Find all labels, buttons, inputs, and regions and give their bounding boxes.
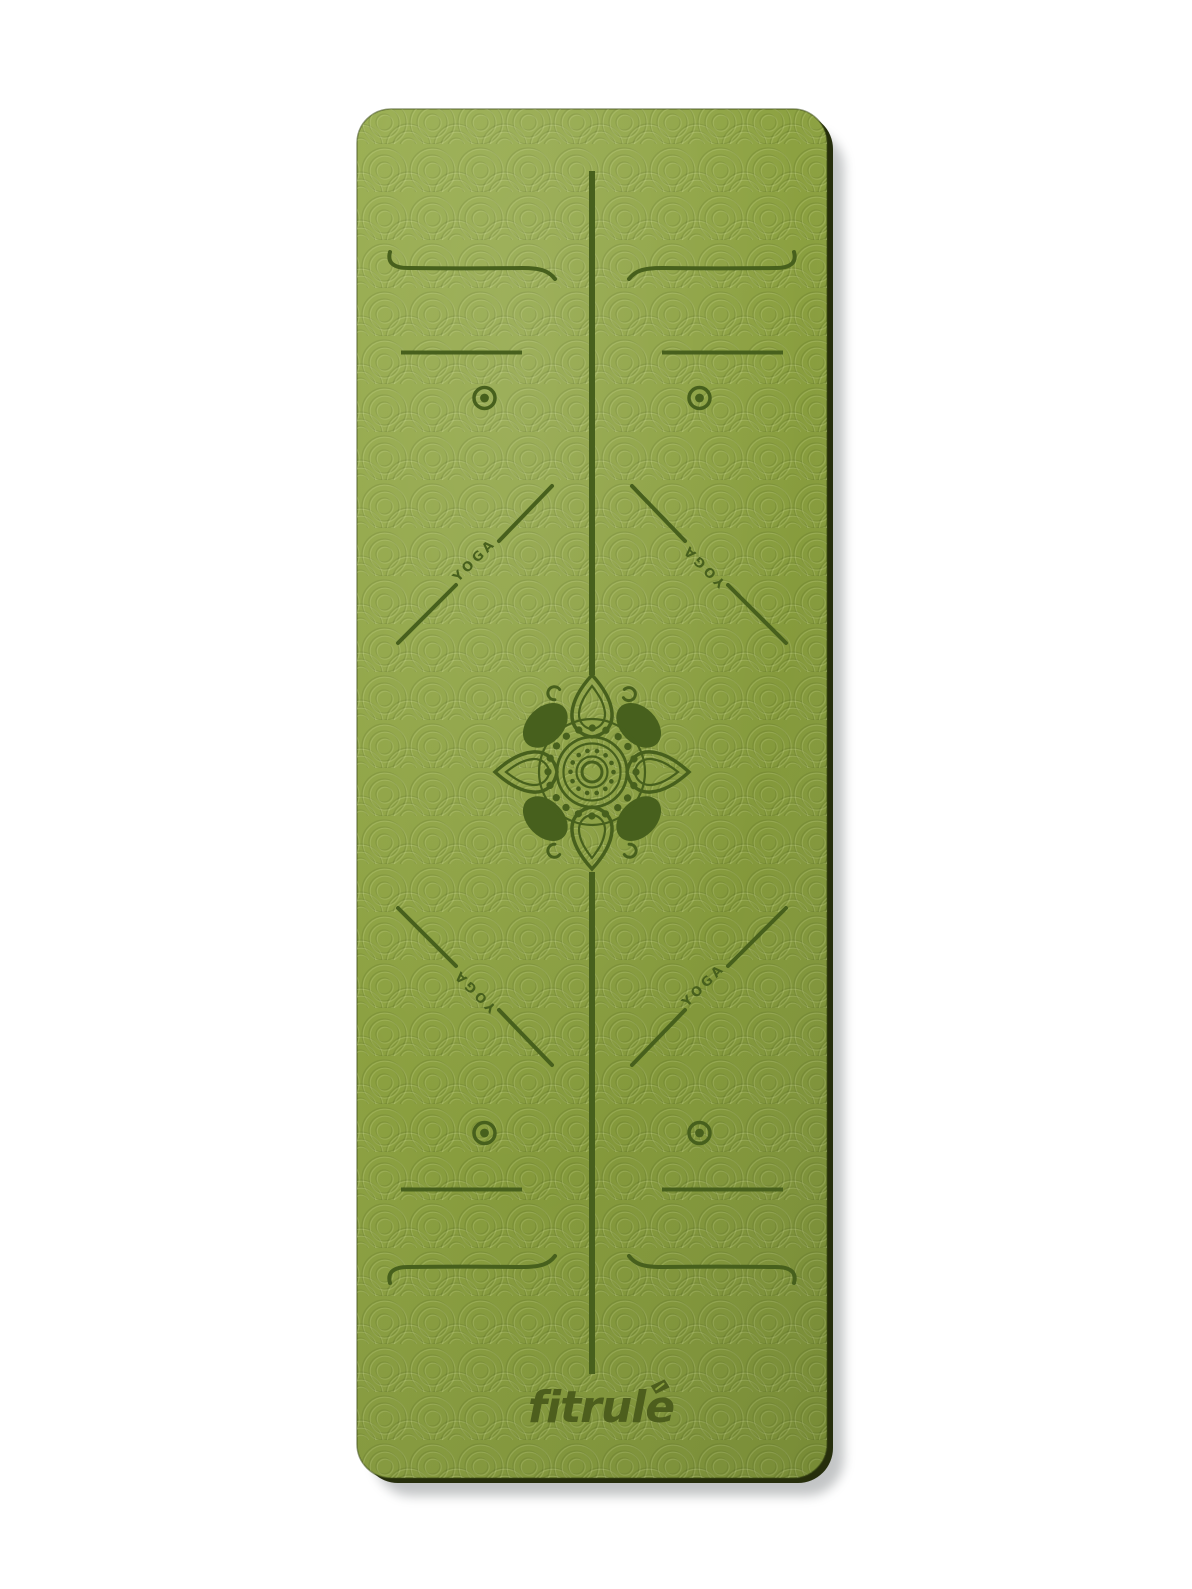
product-photo: YOGA YOGA YOGA YOGA <box>0 0 1192 1589</box>
brand-logo: fitrule <box>528 1379 674 1433</box>
brand-logo-text: fitrule <box>528 1382 674 1433</box>
yoga-mat-image: YOGA YOGA YOGA YOGA <box>0 0 1192 1589</box>
